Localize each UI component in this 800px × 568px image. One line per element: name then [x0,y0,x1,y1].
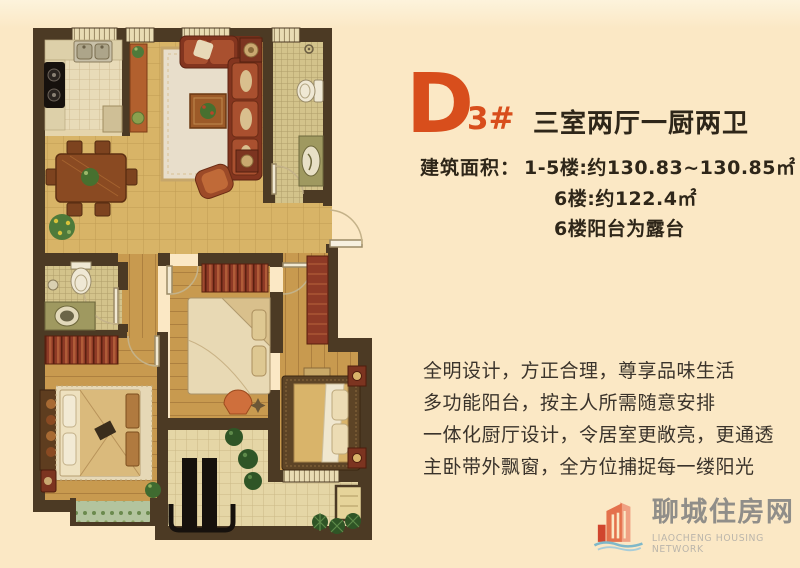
bookshelf [45,336,118,364]
feature-line: 多功能阳台，按主人所需随意安排 [423,394,774,413]
logo-name: 聊城住房网 [652,498,800,528]
feature-line: 主卧带外飘窗，全方位捕捉每一缕阳光 [423,458,774,477]
layout-title: 三室两厅一厨两卫 [533,103,749,140]
unit-letter: D [406,64,474,146]
bay-window [76,501,150,522]
site-logo: 聊城住房网 LIAOCHENG HOUSING NETWORK [591,490,800,556]
feature-line: 全明设计，方正合理，尊享品味生活 [423,362,774,381]
flyer-page: D 3# 三室两厅一厨两卫 建筑面积： 1-5楼:约130.83~130.85㎡… [0,0,800,568]
area-label: 建筑面积： [420,153,520,180]
logo-tagline: LIAOCHENG HOUSING NETWORK [652,533,800,555]
logo-buildings-icon [591,490,646,556]
feature-line: 一体化厨厅设计，令居室更敞亮，更通透 [423,426,774,445]
feature-list: 全明设计，方正合理，尊享品味生活 多功能阳台，按主人所需随意安排 一体化厨厅设计… [423,362,774,490]
bookshelf [202,264,268,292]
toilet [71,268,91,294]
plant [145,482,161,498]
unit-number: 3# [467,101,515,137]
reading-chair [224,390,252,414]
area-line: 1-5楼:约130.83~130.85㎡ [524,153,795,180]
area-line: 6楼:约122.4㎡ [554,184,697,211]
plant [49,214,75,240]
entry-door [330,240,362,247]
master-bedroom [282,366,366,470]
area-line: 6楼阳台为露台 [554,214,685,241]
shoe-cabinet [307,256,328,344]
entry [307,256,328,344]
